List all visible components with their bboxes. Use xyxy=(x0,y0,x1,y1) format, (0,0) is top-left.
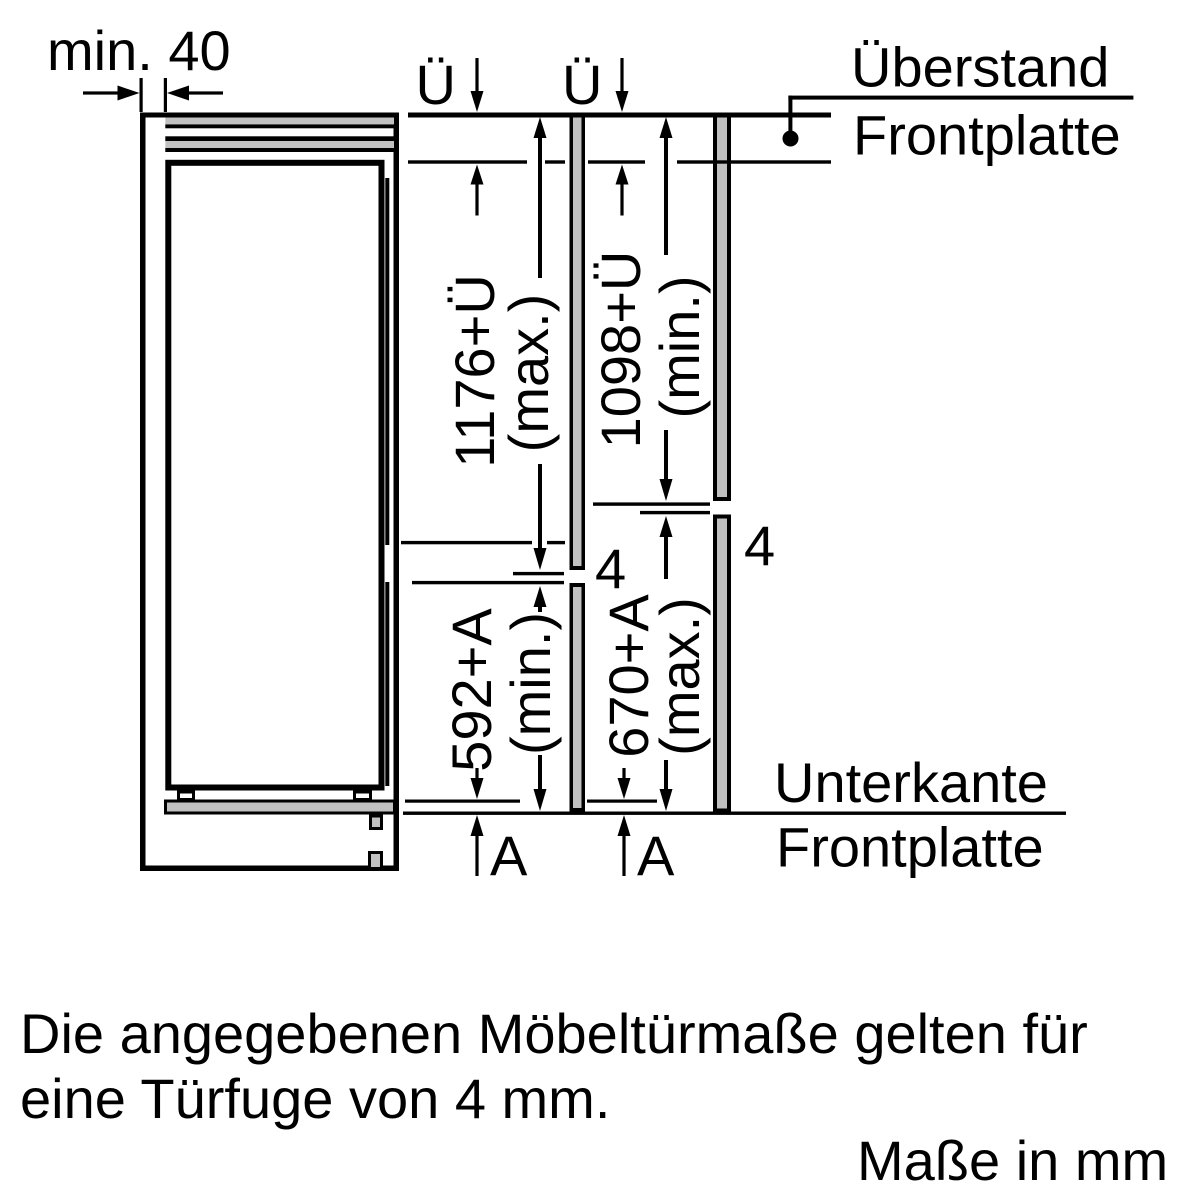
svg-text:A: A xyxy=(490,824,528,887)
svg-text:(max.): (max.) xyxy=(648,597,711,756)
svg-text:(max.): (max.) xyxy=(497,294,560,453)
svg-text:A: A xyxy=(637,824,675,887)
svg-text:min. 40: min. 40 xyxy=(47,19,231,82)
svg-text:1098+Ü: 1098+Ü xyxy=(589,251,652,449)
svg-text:Ü: Ü xyxy=(562,53,602,116)
svg-text:(min.): (min.) xyxy=(648,275,711,418)
svg-text:Unterkante: Unterkante xyxy=(774,751,1048,814)
svg-text:4: 4 xyxy=(595,537,626,600)
svg-text:4: 4 xyxy=(744,514,775,577)
svg-text:Frontplatte: Frontplatte xyxy=(853,104,1121,167)
svg-text:Maße in mm: Maße in mm xyxy=(857,1129,1168,1192)
svg-text:Die angegebenen Möbeltürmaße g: Die angegebenen Möbeltürmaße gelten für xyxy=(20,1002,1088,1065)
svg-text:eine Türfuge von 4 mm.: eine Türfuge von 4 mm. xyxy=(20,1067,610,1130)
svg-text:Frontplatte: Frontplatte xyxy=(776,816,1044,879)
svg-text:Überstand: Überstand xyxy=(851,36,1109,99)
svg-text:(min.): (min.) xyxy=(499,612,562,755)
svg-text:592+A: 592+A xyxy=(440,608,503,772)
svg-text:Ü: Ü xyxy=(416,53,456,116)
